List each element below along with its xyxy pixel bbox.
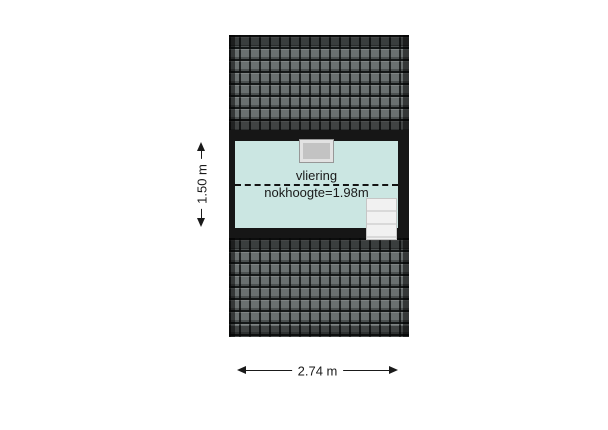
floorplan: vliering nokhoogte=1.98m	[229, 35, 409, 337]
dimension-height-label: 1.50 m	[195, 159, 210, 209]
floorplan-image: vliering nokhoogte=1.98m 1.50 m 2.74 m	[0, 0, 608, 430]
arrow-left-icon	[237, 366, 246, 374]
skylight-pane	[303, 143, 330, 159]
arrow-right-icon	[389, 366, 398, 374]
skylight-window-icon	[299, 139, 334, 163]
dimension-height: 1.50 m	[195, 142, 209, 227]
staircase-icon	[366, 198, 397, 240]
arrow-down-icon	[197, 218, 205, 227]
room-name-label: vliering	[235, 169, 398, 183]
roof-section-bottom	[229, 238, 409, 337]
dimension-width-label: 2.74 m	[292, 364, 344, 379]
roof-section-top	[229, 35, 409, 130]
arrow-up-icon	[197, 142, 205, 151]
dimension-width: 2.74 m	[237, 364, 398, 378]
